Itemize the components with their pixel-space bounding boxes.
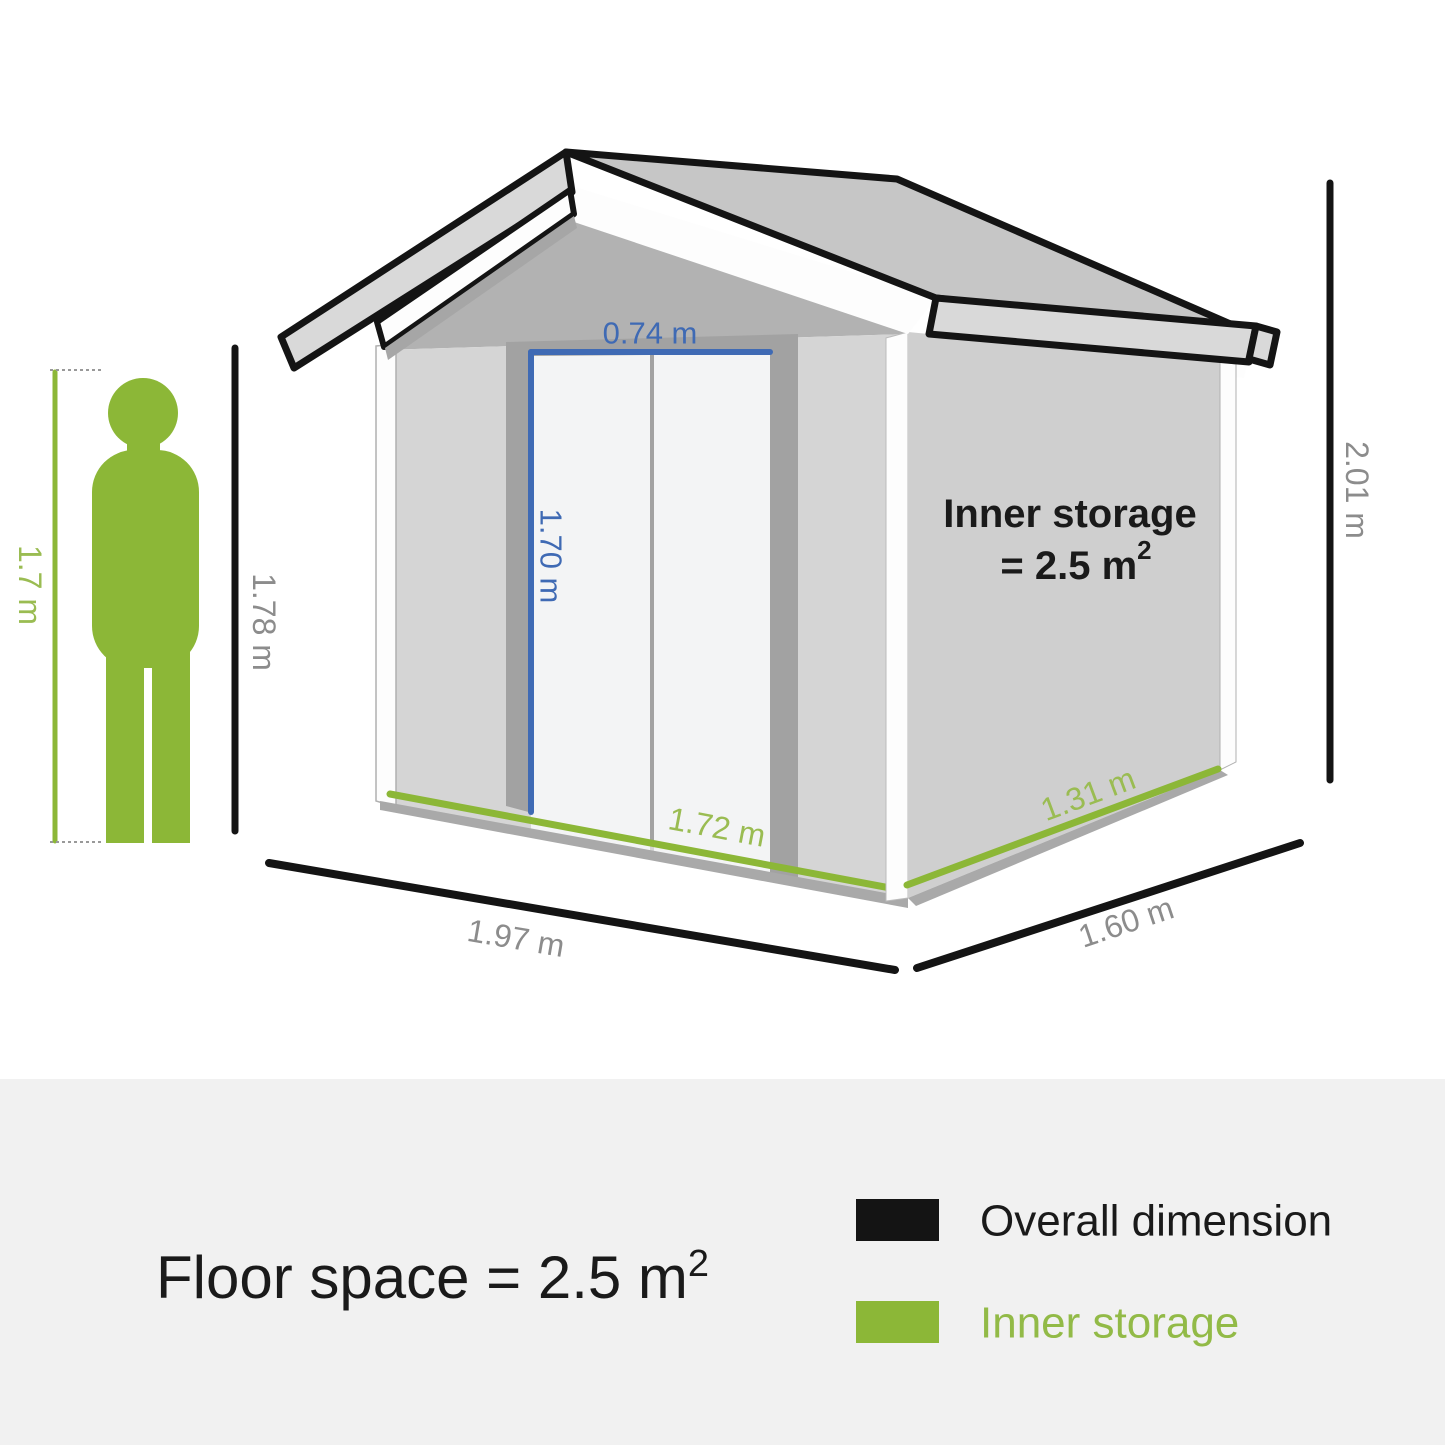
dimension-diagram: 1.7 m 1.78 m 0.74	[0, 0, 1445, 1445]
door-height-label: 1.70 m	[534, 509, 569, 604]
inner-storage-title: Inner storage	[943, 492, 1196, 536]
legend-swatch-inner-storage	[856, 1301, 939, 1343]
total-height-label: 2.01 m	[1339, 441, 1375, 539]
side-wall-right-trim	[1220, 362, 1236, 770]
floor-space-exponent: 2	[688, 1243, 709, 1285]
legend-swatch-overall-dimension	[856, 1199, 939, 1241]
inner-storage-value-prefix: = 2.5 m	[1000, 544, 1137, 588]
floor-space-prefix: Floor space = 2.5 m	[156, 1244, 688, 1311]
front-height-label: 1.78 m	[246, 573, 282, 671]
door-left-panel	[531, 355, 650, 856]
person-left-leg	[106, 640, 144, 843]
person-torso	[92, 450, 199, 668]
corner-post	[886, 332, 908, 901]
person-right-leg	[152, 640, 190, 843]
roof-right-fascia-end	[1249, 326, 1277, 365]
legend-label-overall-dimension: Overall dimension	[980, 1197, 1332, 1246]
person-height-label: 1.7 m	[12, 545, 48, 625]
floor-space-text: Floor space = 2.5 m2	[156, 1243, 709, 1311]
door-width-label: 0.74 m	[603, 316, 698, 351]
legend-label-inner-storage: Inner storage	[980, 1299, 1239, 1348]
inner-storage-exponent: 2	[1137, 535, 1151, 565]
front-wall-left-trim	[376, 344, 396, 807]
dimension-diagram-page: 1.7 m 1.78 m 0.74	[0, 0, 1445, 1445]
